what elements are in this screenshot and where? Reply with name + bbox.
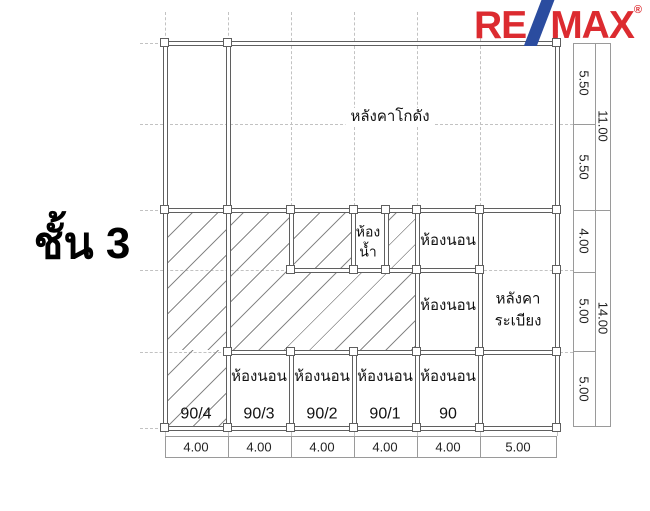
column-marker xyxy=(160,205,169,214)
grid-dashed-line xyxy=(291,46,292,206)
dimension-tick xyxy=(573,124,595,125)
column-marker xyxy=(223,38,232,47)
dim-bottom-1: 4.00 xyxy=(183,440,208,455)
column-marker xyxy=(381,205,390,214)
grid-dashed-line xyxy=(291,12,292,41)
dimension-band xyxy=(165,436,557,458)
column-marker xyxy=(286,265,295,274)
wall xyxy=(226,350,559,355)
dim-right-total-14-00: 14.00 xyxy=(596,302,611,335)
remax-logo: RE MAX ® xyxy=(474,4,642,46)
column-marker xyxy=(349,347,358,356)
column-marker xyxy=(552,205,561,214)
grid-dashed-line xyxy=(480,46,481,206)
room-label-bathroom: ห้อง น้ำ xyxy=(356,222,380,263)
dimension-tick xyxy=(291,436,292,458)
column-marker xyxy=(349,205,358,214)
wall xyxy=(352,350,357,430)
grid-dashed-line xyxy=(354,46,355,206)
dim-bottom-4: 4.00 xyxy=(372,440,397,455)
column-marker xyxy=(412,205,421,214)
dim-right-total-11-00: 11.00 xyxy=(596,110,611,142)
room-label-bedroom-2: ห้องนอน xyxy=(420,295,476,317)
unit-number-90: 90 xyxy=(439,402,457,425)
unit-number-90-4: 90/4 xyxy=(180,402,211,425)
column-marker xyxy=(286,205,295,214)
column-marker xyxy=(475,205,484,214)
floor-plan-page: RE MAX ® ชั้น 3 หลังคาโกดัง ห้อง น้ำ ห้อ… xyxy=(0,0,650,511)
wall xyxy=(478,208,483,430)
column-marker xyxy=(552,347,561,356)
column-marker xyxy=(160,423,169,432)
dim-right-5-00-b: 5.00 xyxy=(577,376,592,401)
wall xyxy=(555,41,560,430)
dimension-tick xyxy=(228,436,229,458)
grid-dashed-line xyxy=(417,12,418,41)
unit-number-90-2: 90/2 xyxy=(306,402,337,425)
room-label-bedroom-3: ห้องนอน xyxy=(231,366,287,388)
column-marker xyxy=(412,265,421,274)
column-marker xyxy=(223,423,232,432)
column-marker xyxy=(475,423,484,432)
dimension-tick xyxy=(573,272,595,273)
dimension-tick xyxy=(480,436,481,458)
floor-title: ชั้น 3 xyxy=(34,208,131,278)
column-marker xyxy=(223,347,232,356)
wall xyxy=(289,208,294,272)
dim-right-5-50-a: 5.50 xyxy=(577,70,592,95)
column-marker xyxy=(223,205,232,214)
dim-bottom-3: 4.00 xyxy=(309,440,334,455)
room-label-balcony-roof: หลังคา ระเบียง xyxy=(495,288,542,332)
column-marker xyxy=(349,423,358,432)
logo-text-max: MAX xyxy=(550,6,634,45)
wall xyxy=(163,41,168,430)
dimension-tick xyxy=(354,436,355,458)
room-label-bedroom-5: ห้องนอน xyxy=(357,366,413,388)
dim-bottom-5: 4.00 xyxy=(435,440,460,455)
grid-dashed-line xyxy=(165,12,166,41)
wall xyxy=(289,350,294,430)
dimension-tick xyxy=(417,436,418,458)
grid-dashed-line xyxy=(228,12,229,41)
wall xyxy=(384,208,389,272)
column-marker xyxy=(381,265,390,274)
column-marker xyxy=(286,347,295,356)
logo-text-re: RE xyxy=(474,6,526,45)
column-marker xyxy=(552,423,561,432)
dimension-tick xyxy=(595,43,596,427)
unit-number-90-1: 90/1 xyxy=(369,402,400,425)
unit-number-90-3: 90/3 xyxy=(243,402,274,425)
room-label-bedroom-1: ห้องนอน xyxy=(420,230,476,252)
room-label-bedroom-6: ห้องนอน xyxy=(420,366,476,388)
column-marker xyxy=(475,347,484,356)
column-marker xyxy=(475,265,484,274)
dim-right-5-00-a: 5.00 xyxy=(577,298,592,323)
column-marker xyxy=(412,347,421,356)
dim-right-4-00: 4.00 xyxy=(577,228,592,253)
grid-dashed-line xyxy=(354,12,355,41)
column-marker xyxy=(349,265,358,274)
grid-dashed-line xyxy=(417,46,418,206)
dimension-tick xyxy=(573,210,611,211)
room-label-warehouse-roof: หลังคาโกดัง xyxy=(345,108,434,126)
column-marker xyxy=(412,423,421,432)
room-label-bedroom-4: ห้องนอน xyxy=(294,366,350,388)
column-marker xyxy=(160,38,169,47)
dimension-tick xyxy=(573,351,595,352)
column-marker xyxy=(286,423,295,432)
dim-bottom-6: 5.00 xyxy=(505,440,530,455)
dim-bottom-2: 4.00 xyxy=(246,440,271,455)
column-marker xyxy=(552,265,561,274)
dim-right-5-50-b: 5.50 xyxy=(577,154,592,179)
registered-trademark-icon: ® xyxy=(634,4,642,16)
